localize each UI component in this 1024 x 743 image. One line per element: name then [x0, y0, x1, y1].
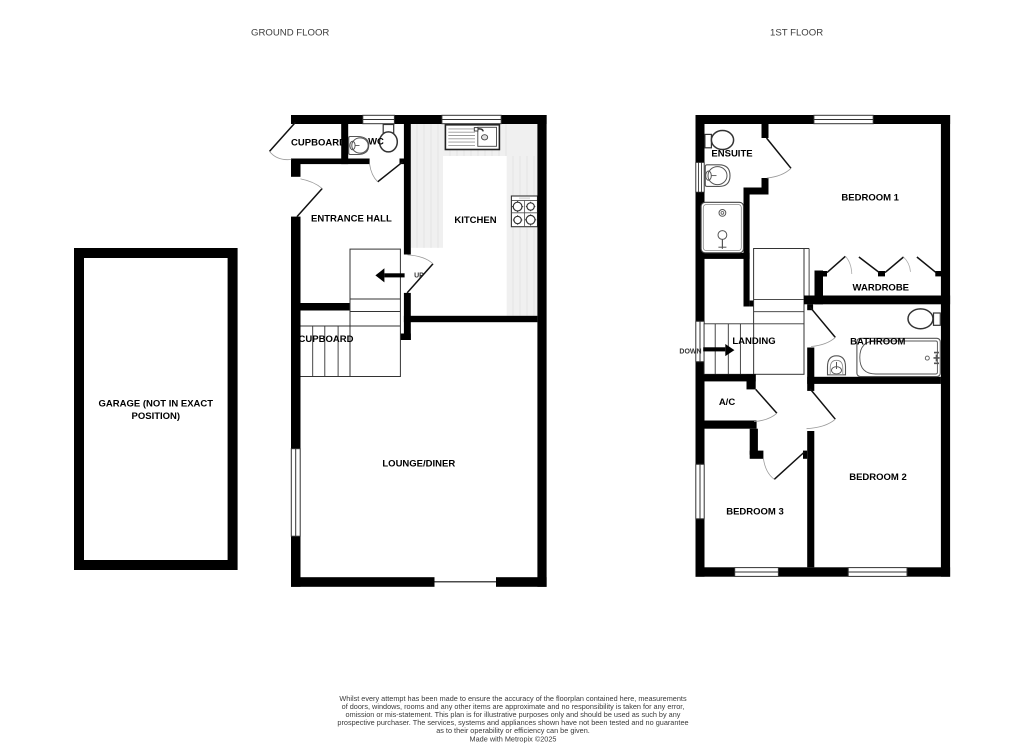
- svg-text:BATHROOM: BATHROOM: [850, 337, 905, 348]
- svg-text:GROUND FLOOR: GROUND FLOOR: [251, 28, 329, 39]
- svg-text:1ST FLOOR: 1ST FLOOR: [770, 28, 823, 39]
- svg-text:WARDROBE: WARDROBE: [853, 283, 909, 294]
- svg-text:A/C: A/C: [719, 397, 736, 408]
- svg-text:DOWN: DOWN: [679, 349, 701, 356]
- svg-text:KITCHEN: KITCHEN: [454, 215, 496, 226]
- svg-text:Made with Metropix ©2025: Made with Metropix ©2025: [470, 734, 557, 743]
- svg-text:POSITION): POSITION): [132, 411, 181, 422]
- svg-text:BEDROOM 1: BEDROOM 1: [841, 192, 899, 203]
- svg-text:BEDROOM 2: BEDROOM 2: [849, 472, 907, 483]
- svg-text:BEDROOM 3: BEDROOM 3: [726, 506, 784, 517]
- svg-text:ENTRANCE HALL: ENTRANCE HALL: [311, 214, 392, 225]
- svg-text:LOUNGE/DINER: LOUNGE/DINER: [382, 459, 455, 470]
- svg-text:LANDING: LANDING: [732, 336, 775, 347]
- svg-text:CUPBOARD: CUPBOARD: [299, 334, 354, 345]
- svg-text:CUPBOARD: CUPBOARD: [291, 137, 346, 148]
- svg-text:ENSUITE: ENSUITE: [711, 149, 752, 160]
- svg-text:GARAGE (NOT IN EXACT: GARAGE (NOT IN EXACT: [99, 399, 214, 410]
- svg-text:WC: WC: [368, 137, 384, 148]
